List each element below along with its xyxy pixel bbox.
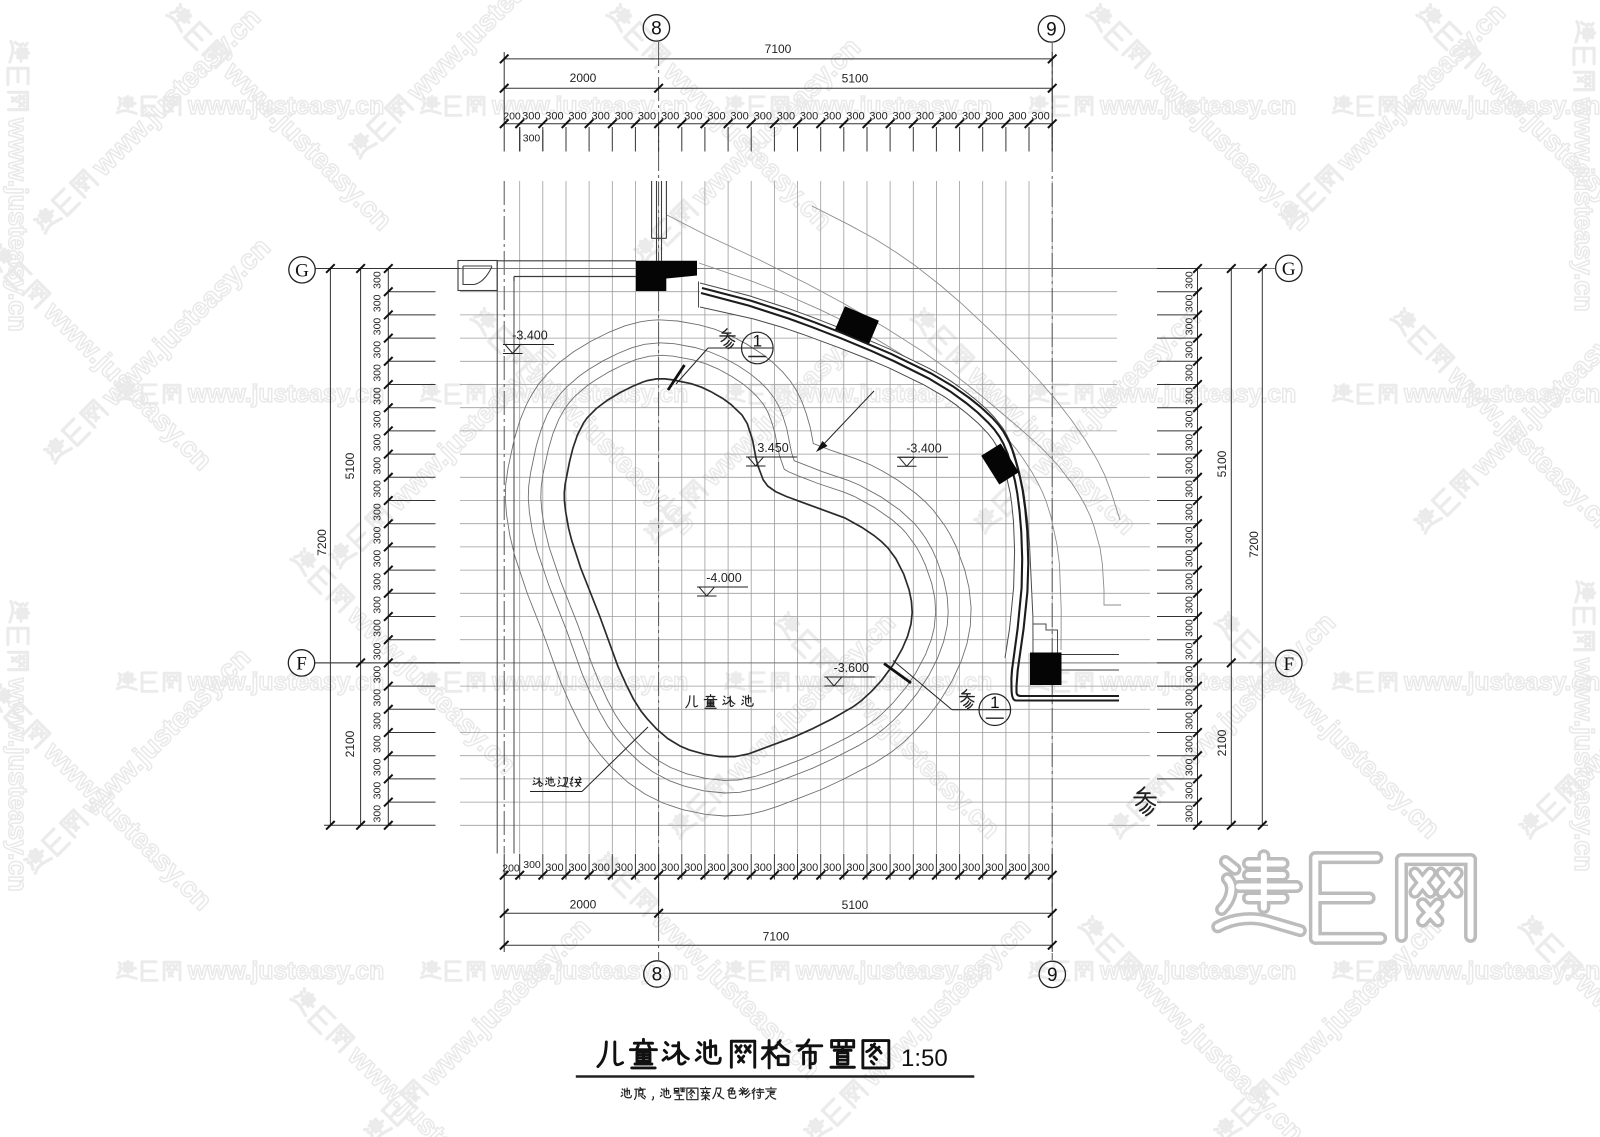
svg-text:2000: 2000: [570, 71, 597, 85]
svg-text:300: 300: [1184, 387, 1196, 405]
svg-text:300: 300: [372, 526, 384, 544]
svg-text:5100: 5100: [842, 898, 869, 912]
svg-text:7100: 7100: [763, 930, 790, 944]
svg-text:300: 300: [592, 862, 610, 874]
svg-text:300: 300: [1184, 712, 1196, 730]
svg-text:300: 300: [939, 862, 957, 874]
svg-text:300: 300: [846, 862, 864, 874]
svg-text:-3.600: -3.600: [834, 661, 869, 675]
svg-text:300: 300: [1184, 642, 1196, 660]
svg-text:300: 300: [372, 642, 384, 660]
svg-text:G: G: [1282, 259, 1296, 280]
svg-text:300: 300: [1184, 805, 1196, 823]
svg-text:7100: 7100: [765, 42, 792, 56]
svg-text:300: 300: [1184, 364, 1196, 382]
svg-text:300: 300: [372, 805, 384, 823]
svg-text:300: 300: [1184, 410, 1196, 428]
svg-text:2100: 2100: [1215, 729, 1229, 756]
svg-text:300: 300: [1184, 619, 1196, 637]
svg-text:200: 200: [502, 863, 520, 875]
svg-text:300: 300: [1184, 596, 1196, 614]
svg-text:300: 300: [1184, 666, 1196, 684]
svg-text:300: 300: [1184, 573, 1196, 591]
svg-text:300: 300: [1184, 758, 1196, 776]
svg-text:300: 300: [592, 111, 610, 123]
svg-text:300: 300: [754, 862, 772, 874]
svg-text:300: 300: [684, 862, 702, 874]
svg-text:www.justeasy.cn: www.justeasy.cn: [1569, 97, 1599, 312]
svg-text:300: 300: [754, 111, 772, 123]
svg-text:7200: 7200: [1247, 531, 1261, 558]
svg-text:300: 300: [522, 111, 540, 123]
svg-text:300: 300: [523, 859, 541, 871]
svg-text:300: 300: [523, 133, 541, 145]
svg-text:300: 300: [916, 111, 934, 123]
svg-text:www.justeasy.cn: www.justeasy.cn: [3, 117, 33, 332]
svg-text:300: 300: [568, 111, 586, 123]
svg-text:300: 300: [869, 862, 887, 874]
svg-text:300: 300: [1184, 480, 1196, 498]
svg-text:300: 300: [372, 294, 384, 312]
svg-text:www.justeasy.cn: www.justeasy.cn: [187, 381, 384, 408]
svg-text:300: 300: [823, 111, 841, 123]
svg-text:-4.000: -4.000: [706, 571, 741, 585]
svg-text:300: 300: [777, 111, 795, 123]
svg-text:300: 300: [1184, 294, 1196, 312]
svg-text:300: 300: [545, 862, 563, 874]
svg-text:300: 300: [730, 111, 748, 123]
svg-text:F: F: [296, 653, 307, 674]
svg-text:-3.400: -3.400: [906, 441, 941, 455]
svg-text:300: 300: [1184, 550, 1196, 568]
svg-text:300: 300: [372, 596, 384, 614]
svg-text:5100: 5100: [343, 452, 357, 479]
svg-text:1: 1: [753, 332, 762, 351]
svg-text:300: 300: [1184, 782, 1196, 800]
svg-text:300: 300: [916, 862, 934, 874]
svg-text:300: 300: [1184, 689, 1196, 707]
svg-text:300: 300: [615, 862, 633, 874]
svg-text:F: F: [1284, 654, 1295, 675]
svg-text:300: 300: [372, 410, 384, 428]
svg-text:300: 300: [372, 666, 384, 684]
svg-text:www.justeasy.cn: www.justeasy.cn: [3, 677, 33, 892]
svg-text:300: 300: [684, 111, 702, 123]
svg-text:300: 300: [777, 862, 795, 874]
svg-text:300: 300: [1008, 862, 1026, 874]
svg-text:300: 300: [372, 712, 384, 730]
svg-text:3.450: 3.450: [757, 441, 788, 455]
svg-text:300: 300: [372, 434, 384, 452]
svg-text:300: 300: [372, 735, 384, 753]
svg-text:300: 300: [1184, 457, 1196, 475]
svg-text:1: 1: [990, 693, 999, 712]
svg-text:300: 300: [707, 862, 725, 874]
svg-text:300: 300: [985, 111, 1003, 123]
svg-text:5100: 5100: [842, 72, 869, 86]
svg-text:300: 300: [707, 111, 725, 123]
svg-text:300: 300: [985, 862, 1003, 874]
svg-text:300: 300: [962, 862, 980, 874]
svg-text:300: 300: [568, 862, 586, 874]
svg-text:G: G: [295, 260, 309, 281]
svg-text:300: 300: [372, 271, 384, 289]
svg-text:1:50: 1:50: [901, 1045, 948, 1072]
svg-text:8: 8: [652, 965, 663, 986]
svg-text:300: 300: [800, 111, 818, 123]
svg-text:200: 200: [503, 111, 521, 123]
svg-text:300: 300: [869, 111, 887, 123]
svg-text:300: 300: [661, 862, 679, 874]
svg-text:300: 300: [661, 111, 679, 123]
svg-text:300: 300: [372, 318, 384, 336]
svg-text:www.justeasy.cn: www.justeasy.cn: [187, 958, 384, 985]
svg-text:9: 9: [1047, 965, 1058, 986]
svg-text:300: 300: [1184, 434, 1196, 452]
svg-text:300: 300: [372, 782, 384, 800]
svg-text:300: 300: [372, 758, 384, 776]
svg-text:300: 300: [372, 457, 384, 475]
svg-text:300: 300: [372, 689, 384, 707]
svg-text:300: 300: [372, 619, 384, 637]
svg-text:300: 300: [372, 480, 384, 498]
svg-text:300: 300: [372, 387, 384, 405]
svg-text:300: 300: [615, 111, 633, 123]
svg-text:300: 300: [800, 862, 818, 874]
svg-text:300: 300: [1184, 318, 1196, 336]
svg-text:5100: 5100: [1215, 450, 1229, 477]
svg-text:300: 300: [1184, 735, 1196, 753]
svg-text:-3.400: -3.400: [512, 329, 547, 343]
svg-text:300: 300: [1184, 341, 1196, 359]
svg-text:300: 300: [962, 111, 980, 123]
svg-text:300: 300: [372, 550, 384, 568]
svg-text:300: 300: [1184, 526, 1196, 544]
svg-text:300: 300: [1031, 111, 1049, 123]
svg-text:300: 300: [1031, 862, 1049, 874]
svg-text:7200: 7200: [315, 529, 329, 556]
svg-text:300: 300: [372, 503, 384, 521]
svg-text:300: 300: [846, 111, 864, 123]
svg-text:300: 300: [823, 862, 841, 874]
svg-text:300: 300: [372, 364, 384, 382]
svg-text:2100: 2100: [343, 730, 357, 757]
svg-text:300: 300: [939, 111, 957, 123]
svg-text:www.justeasy.cn: www.justeasy.cn: [1569, 657, 1599, 872]
svg-text:300: 300: [372, 573, 384, 591]
svg-text:300: 300: [545, 111, 563, 123]
svg-text:300: 300: [638, 111, 656, 123]
svg-text:300: 300: [893, 111, 911, 123]
svg-text:2000: 2000: [570, 898, 597, 912]
svg-text:9: 9: [1046, 19, 1057, 40]
svg-text:300: 300: [638, 862, 656, 874]
svg-text:300: 300: [730, 862, 748, 874]
svg-text:300: 300: [1184, 503, 1196, 521]
svg-text:300: 300: [1008, 111, 1026, 123]
svg-text:300: 300: [372, 341, 384, 359]
svg-text:300: 300: [893, 862, 911, 874]
svg-text:8: 8: [651, 18, 662, 39]
svg-text:300: 300: [1184, 271, 1196, 289]
